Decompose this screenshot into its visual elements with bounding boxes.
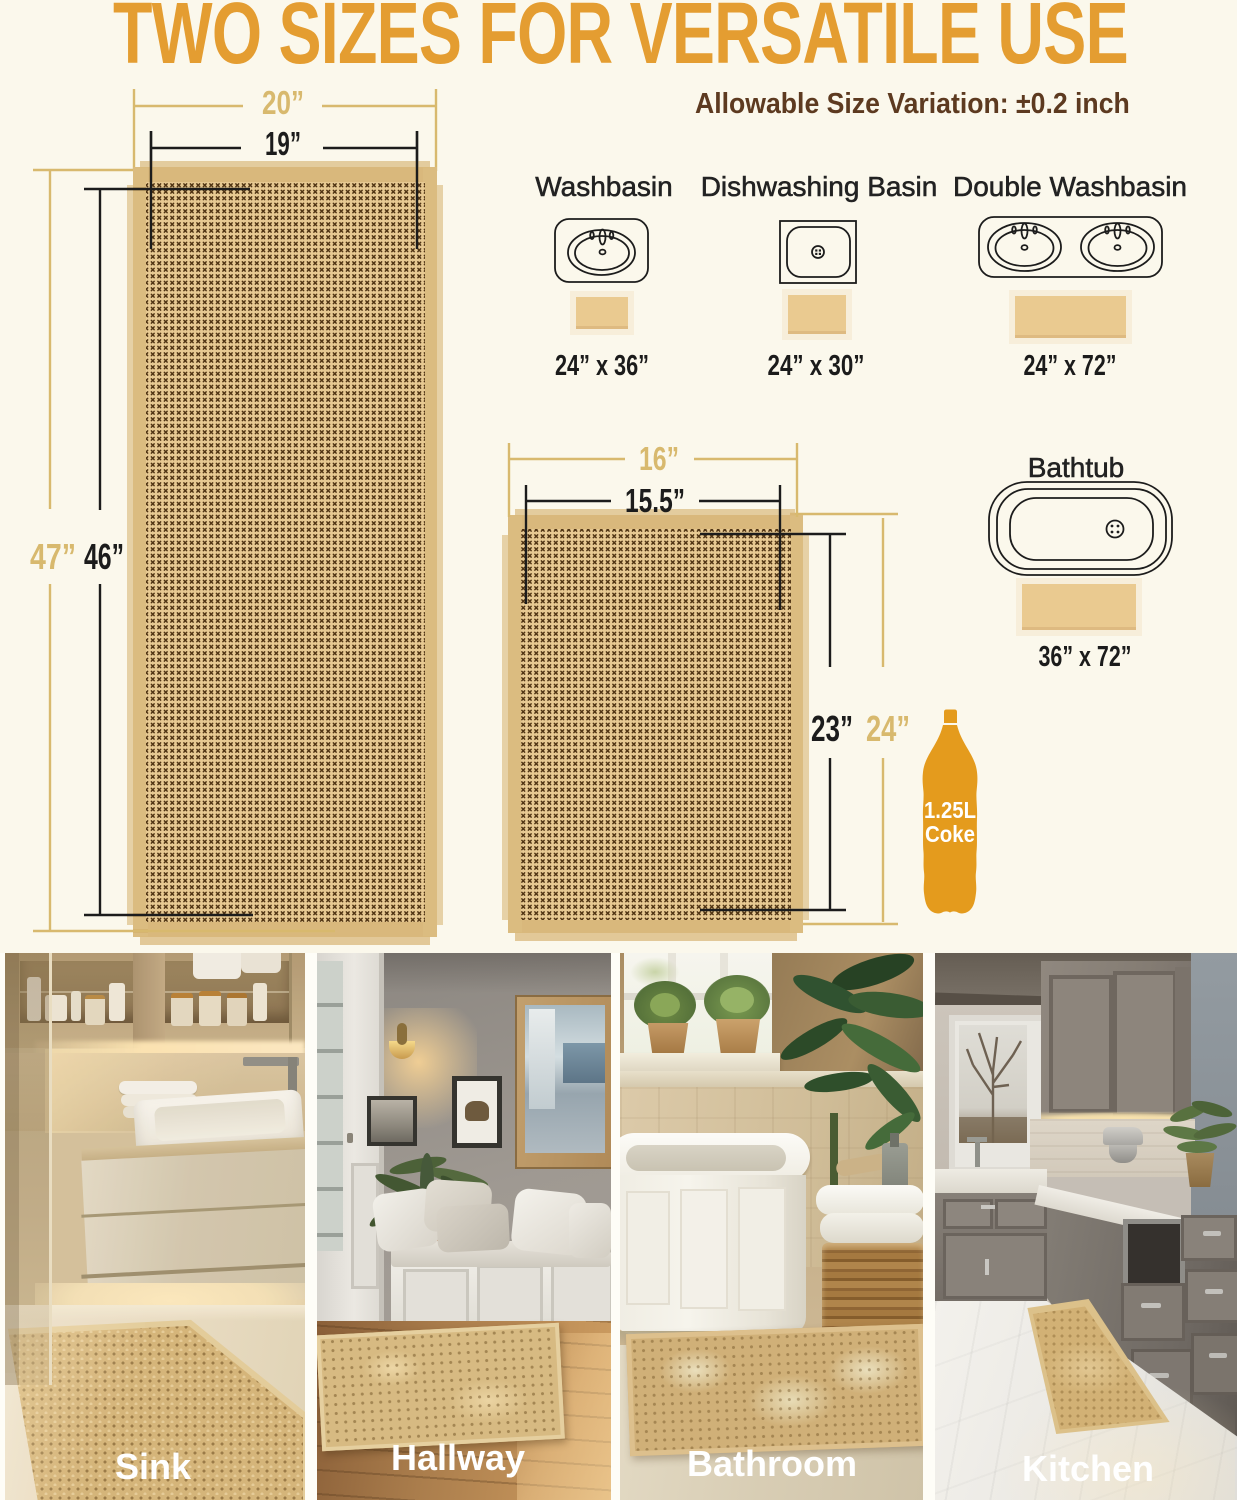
svg-text:16”: 16” bbox=[639, 440, 679, 477]
svg-text:36” x 72”: 36” x 72” bbox=[1039, 641, 1132, 673]
svg-text:47”: 47” bbox=[30, 536, 76, 577]
svg-text:19”: 19” bbox=[265, 125, 301, 162]
svg-text:Double Washbasin: Double Washbasin bbox=[953, 171, 1187, 202]
svg-text:Bathtub: Bathtub bbox=[1028, 452, 1125, 483]
svg-text:24” x 72”: 24” x 72” bbox=[1024, 350, 1117, 382]
svg-text:15.5”: 15.5” bbox=[625, 482, 685, 519]
svg-text:24”: 24” bbox=[866, 708, 910, 749]
svg-text:24” x 36”: 24” x 36” bbox=[555, 350, 649, 382]
svg-text:1.25L: 1.25L bbox=[924, 797, 976, 823]
svg-text:24” x 30”: 24” x 30” bbox=[768, 350, 865, 382]
svg-text:Dishwashing Basin: Dishwashing Basin bbox=[701, 171, 938, 202]
svg-text:Washbasin: Washbasin bbox=[535, 171, 672, 202]
svg-text:23”: 23” bbox=[811, 708, 853, 749]
svg-text:20”: 20” bbox=[262, 84, 304, 121]
svg-text:Coke: Coke bbox=[925, 821, 975, 847]
svg-text:46”: 46” bbox=[84, 536, 124, 577]
